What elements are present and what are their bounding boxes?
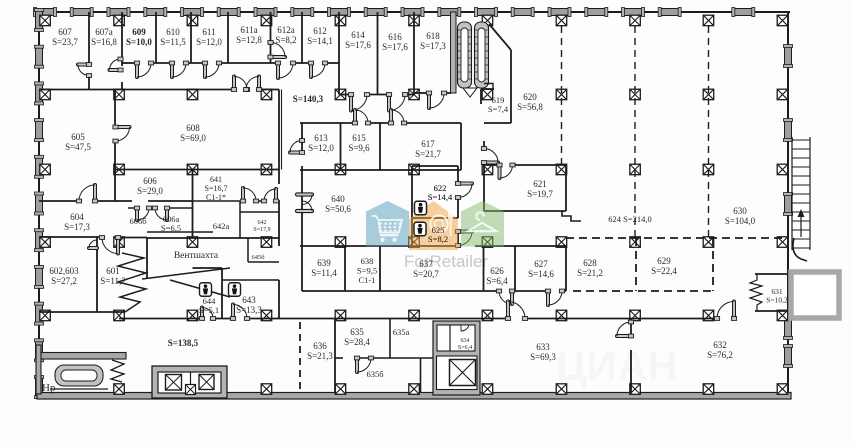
- svg-text:642а: 642а: [213, 221, 230, 231]
- svg-text:S=140,3: S=140,3: [293, 94, 324, 104]
- svg-text:602,603S=27,2: 602,603S=27,2: [49, 266, 79, 286]
- svg-text:606б: 606б: [129, 216, 146, 226]
- svg-text:ЦИАН: ЦИАН: [556, 342, 678, 389]
- svg-text:635б: 635б: [366, 369, 383, 379]
- svg-text:Вентшахта: Вентшахта: [174, 251, 219, 261]
- svg-text:624 S=214,0: 624 S=214,0: [608, 214, 652, 224]
- svg-text:635а: 635а: [393, 327, 410, 337]
- svg-text:612аS=8,2: 612аS=8,2: [275, 25, 296, 45]
- svg-text:S=138,5: S=138,5: [168, 338, 199, 348]
- svg-text:645б: 645б: [251, 254, 265, 261]
- svg-text:Нр: Нр: [42, 382, 56, 394]
- svg-text:606аS=6,5: 606аS=6,5: [161, 214, 181, 233]
